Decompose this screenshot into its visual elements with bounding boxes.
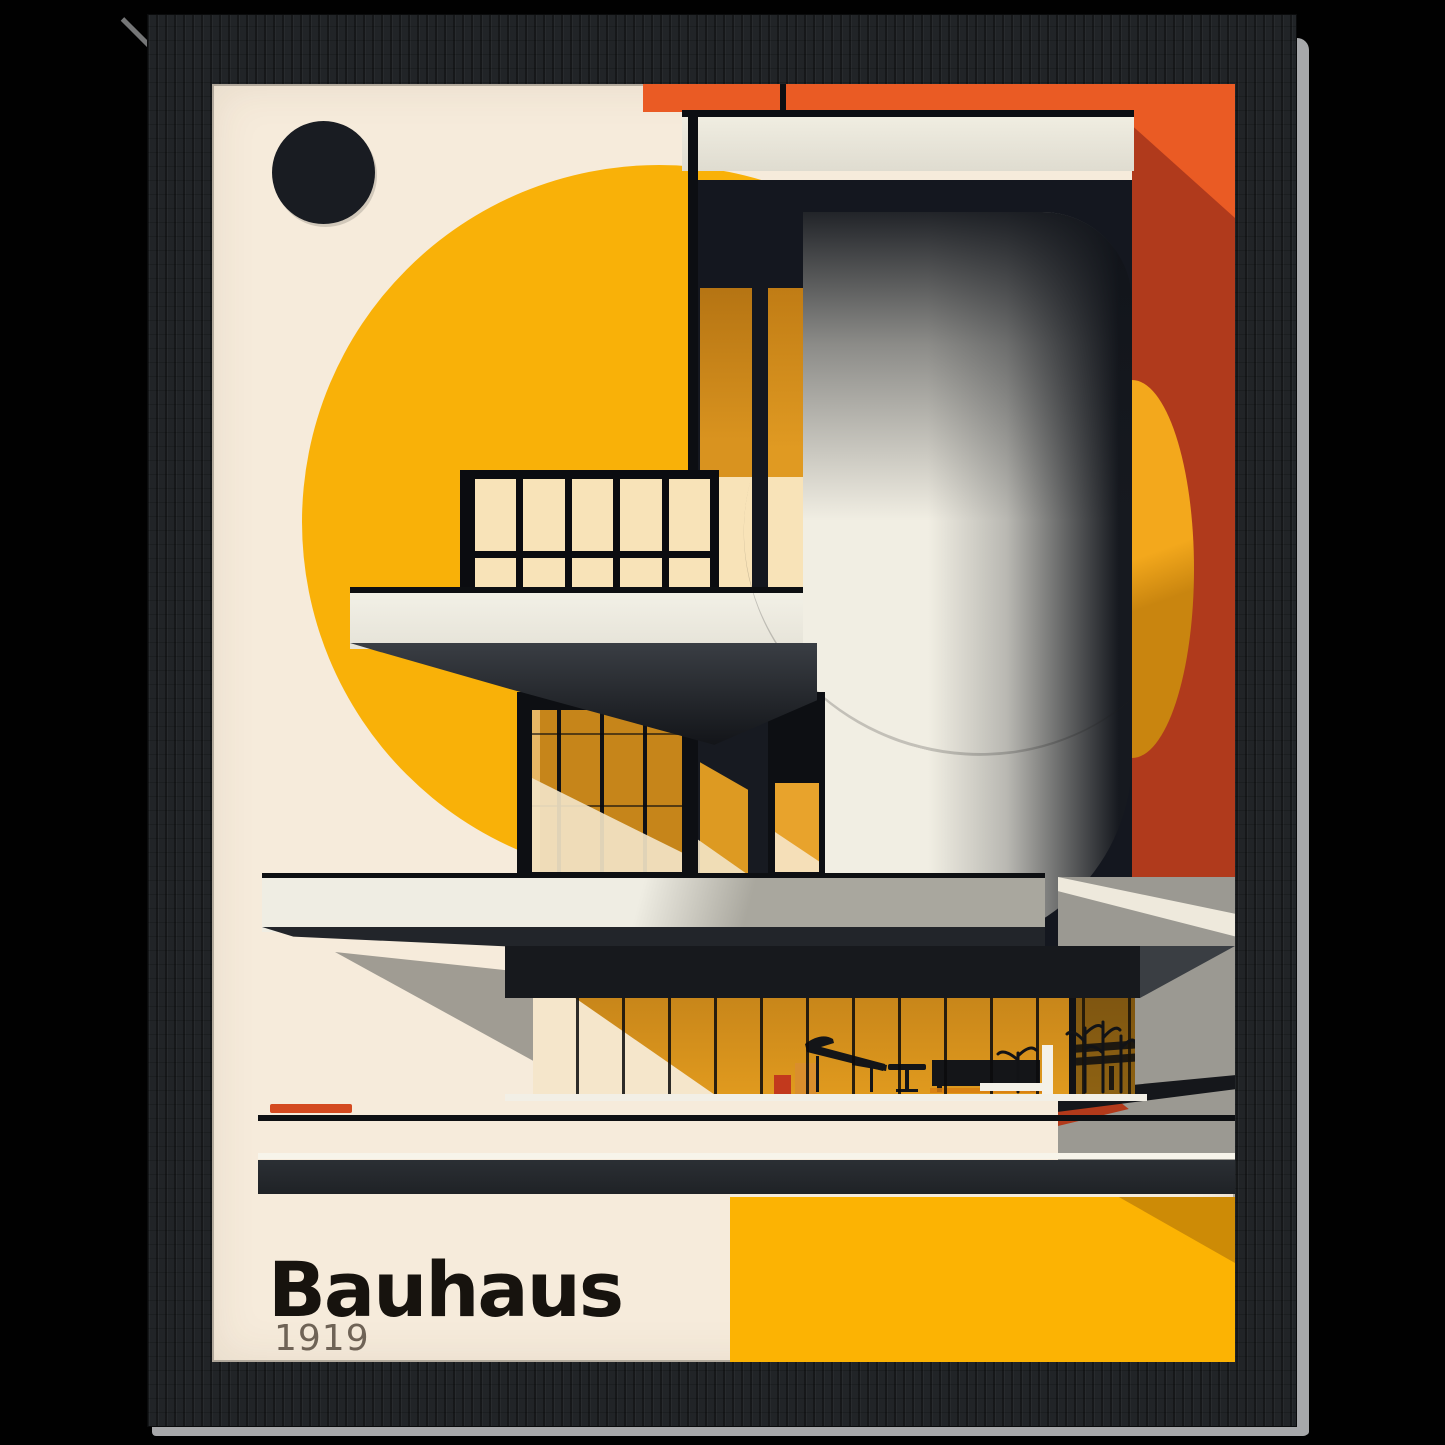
light-strip [258, 1153, 1235, 1159]
poster-year: 1919 [274, 1321, 370, 1357]
upper-slab [350, 587, 822, 649]
window-pane [669, 479, 710, 551]
cut-corner-shade [730, 1197, 1235, 1362]
frame-edge-right [1297, 38, 1309, 1435]
base-line [258, 1115, 1235, 1121]
picture-frame: Bauhaus 1919 [147, 14, 1297, 1427]
plant-silhouettes [973, 998, 1135, 1094]
red-side-panel [1132, 84, 1235, 877]
light-sweep [775, 783, 819, 872]
middle-window-plainpane [775, 783, 819, 872]
black-baseline-bar [258, 1160, 1235, 1194]
middle-window-gridpane [532, 710, 682, 872]
window-pane [620, 479, 661, 551]
frame-edge-bottom [152, 1427, 1309, 1436]
ground-glass-wall [533, 998, 1135, 1094]
lower-slab [262, 873, 1045, 932]
poster-title: Bauhaus [268, 1252, 622, 1328]
transom [532, 733, 682, 735]
red-accent-bar [270, 1104, 352, 1113]
ground-sill [505, 1094, 1147, 1101]
ground-header [505, 946, 1140, 998]
window-pane [572, 479, 613, 551]
rounded-tower [803, 212, 1132, 948]
orange-band-divider [780, 84, 786, 112]
window-pane [475, 479, 516, 551]
roof-fascia [682, 110, 1134, 171]
window-frame-arm [980, 1083, 1053, 1091]
orange-top-band [643, 84, 1235, 112]
window-pane [523, 479, 564, 551]
amber-panel-left [700, 288, 752, 477]
fascia-left-post [688, 110, 698, 470]
poster-canvas: Bauhaus 1919 [212, 84, 1235, 1362]
black-dot [272, 121, 375, 224]
sun-arc-glimpse [1132, 380, 1194, 758]
yellow-bottom-block [730, 1197, 1235, 1362]
framed-poster-scene: Bauhaus 1919 [0, 0, 1445, 1445]
